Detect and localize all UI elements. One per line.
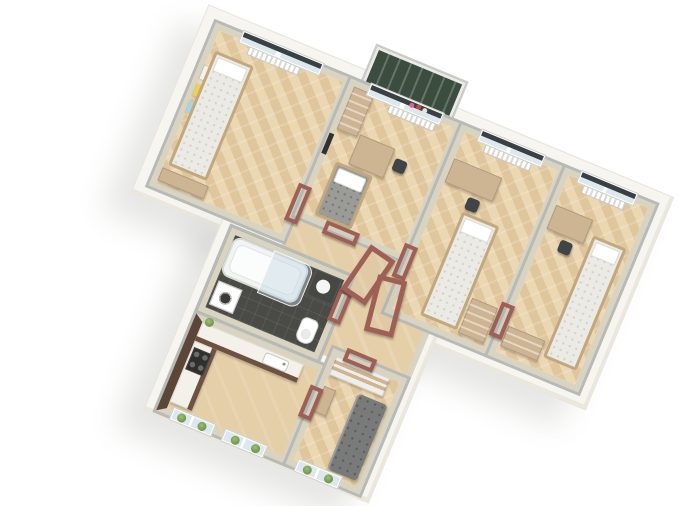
washing-machine-icon xyxy=(209,280,243,314)
toilet-icon xyxy=(294,315,321,346)
chair xyxy=(556,239,573,256)
desk xyxy=(444,158,502,202)
chair xyxy=(464,197,481,214)
bed-pillow xyxy=(590,242,620,266)
bed-pillow xyxy=(212,57,247,83)
kitchen-window xyxy=(220,428,268,459)
bed-pillow xyxy=(333,168,366,193)
desk xyxy=(546,205,593,244)
bed-pillow xyxy=(460,218,493,243)
single-bed xyxy=(543,235,627,371)
gray-bed xyxy=(314,161,373,230)
chair xyxy=(391,158,408,175)
kitchen-window xyxy=(169,407,217,438)
floorplan-scene xyxy=(0,0,700,506)
dresser xyxy=(500,326,545,362)
